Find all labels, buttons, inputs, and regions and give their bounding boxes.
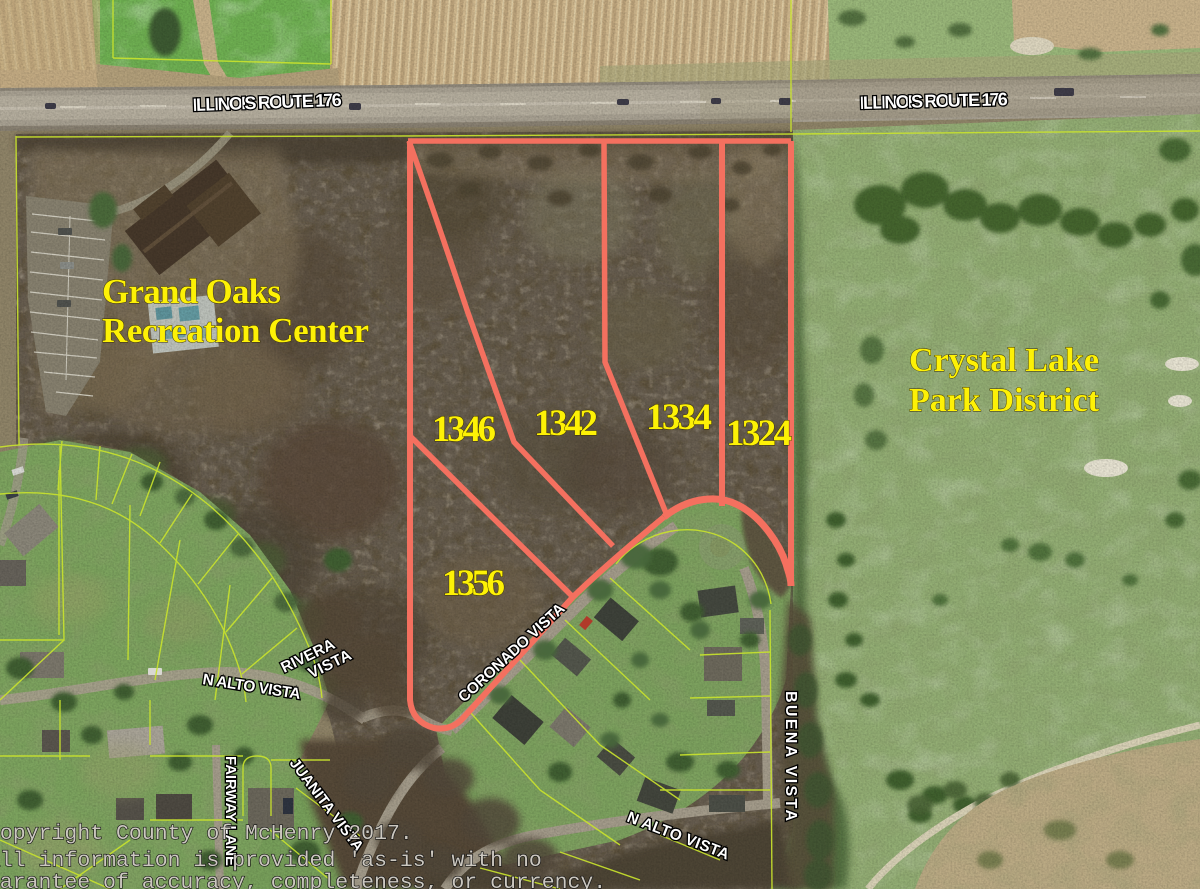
svg-text:1334: 1334 <box>646 397 712 438</box>
svg-text:ILLINOIS ROUTE 176: ILLINOIS ROUTE 176 <box>860 89 1008 113</box>
svg-text:Park District: Park District <box>909 382 1100 419</box>
svg-text:All information is provided 'a: All information is provided 'as-is' with… <box>0 849 542 873</box>
svg-text:guarantee of accuracy, complet: guarantee of accuracy, completeness, or … <box>0 871 606 889</box>
svg-text:1342: 1342 <box>534 403 598 444</box>
svg-text:Crystal Lake: Crystal Lake <box>909 342 1099 379</box>
svg-text:Grand Oaks: Grand Oaks <box>102 272 281 311</box>
svg-text:1324: 1324 <box>726 413 792 454</box>
svg-text:Recreation Center: Recreation Center <box>102 311 369 350</box>
svg-text:Copyright County of McHenry 20: Copyright County of McHenry 2017. <box>0 822 413 846</box>
svg-text:1346: 1346 <box>432 409 496 450</box>
svg-text:BUENA VISTA: BUENA VISTA <box>782 691 799 821</box>
svg-text:1356: 1356 <box>442 563 505 604</box>
